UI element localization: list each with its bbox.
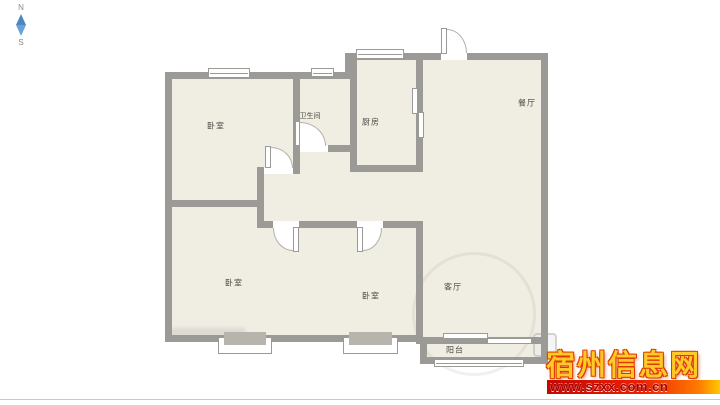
bedroom2-bay-window-sill [224, 332, 266, 345]
bathroom-window [311, 68, 334, 77]
bedroom1-window [208, 68, 250, 78]
entrance-door-gap [441, 53, 467, 60]
balcony-sliding-door-panel [487, 338, 532, 344]
entrance-door-leaf [441, 28, 447, 54]
watermark-site-name: 宿州信息网 [546, 342, 701, 384]
compass-north-label: N [10, 3, 32, 12]
bedroom1-door-leaf [265, 146, 271, 168]
balcony-sliding-door-panel [443, 333, 488, 339]
compass-needle-icon [16, 14, 26, 25]
room-label-bedroom-bottom-left: 卧室 [225, 278, 243, 289]
wall-exterior-left [165, 72, 172, 342]
wall-exterior-right [541, 53, 548, 364]
wall-kitchen-bottom [350, 165, 423, 172]
room-label-balcony: 阳台 [446, 345, 464, 356]
wall-hall-step [257, 167, 264, 228]
room-label-living: 客厅 [444, 282, 462, 293]
wall-bedroom3-right [416, 221, 423, 342]
entrance-door-arc [447, 29, 467, 53]
bedroom3-bay-window-sill [349, 332, 392, 345]
kitchen-sliding-door-panel [418, 112, 424, 138]
room-label-bedroom-bottom-middle: 卧室 [362, 291, 380, 302]
watermark-url: www.szxx.com.cn [547, 380, 720, 394]
bedroom2-door-leaf [293, 227, 299, 252]
page-divider [0, 399, 720, 400]
kitchen-sliding-door-panel [412, 88, 418, 114]
wall-kitchen-left [350, 60, 357, 172]
room-label-kitchen: 厨房 [362, 117, 380, 128]
room-label-bathroom: 卫生间 [300, 111, 321, 121]
watermark-url-bar: www.szxx.com.cn [547, 380, 720, 394]
compass: N S [10, 3, 32, 47]
bedroom3-door-leaf [357, 227, 363, 252]
bathroom-door-leaf [295, 121, 300, 146]
compass-south-label: S [10, 38, 32, 47]
room-label-dining: 餐厅 [518, 98, 536, 109]
wall-bedroom1-bottom [172, 200, 264, 207]
bathroom-door-gap [300, 145, 328, 152]
kitchen-window [356, 49, 404, 59]
bedroom1-door-gap [264, 167, 293, 174]
room-label-bedroom-top-left: 卧室 [207, 121, 225, 132]
compass-needle-icon [16, 25, 26, 36]
floorplan-canvas: N S [0, 0, 720, 405]
balcony-window [434, 359, 524, 367]
